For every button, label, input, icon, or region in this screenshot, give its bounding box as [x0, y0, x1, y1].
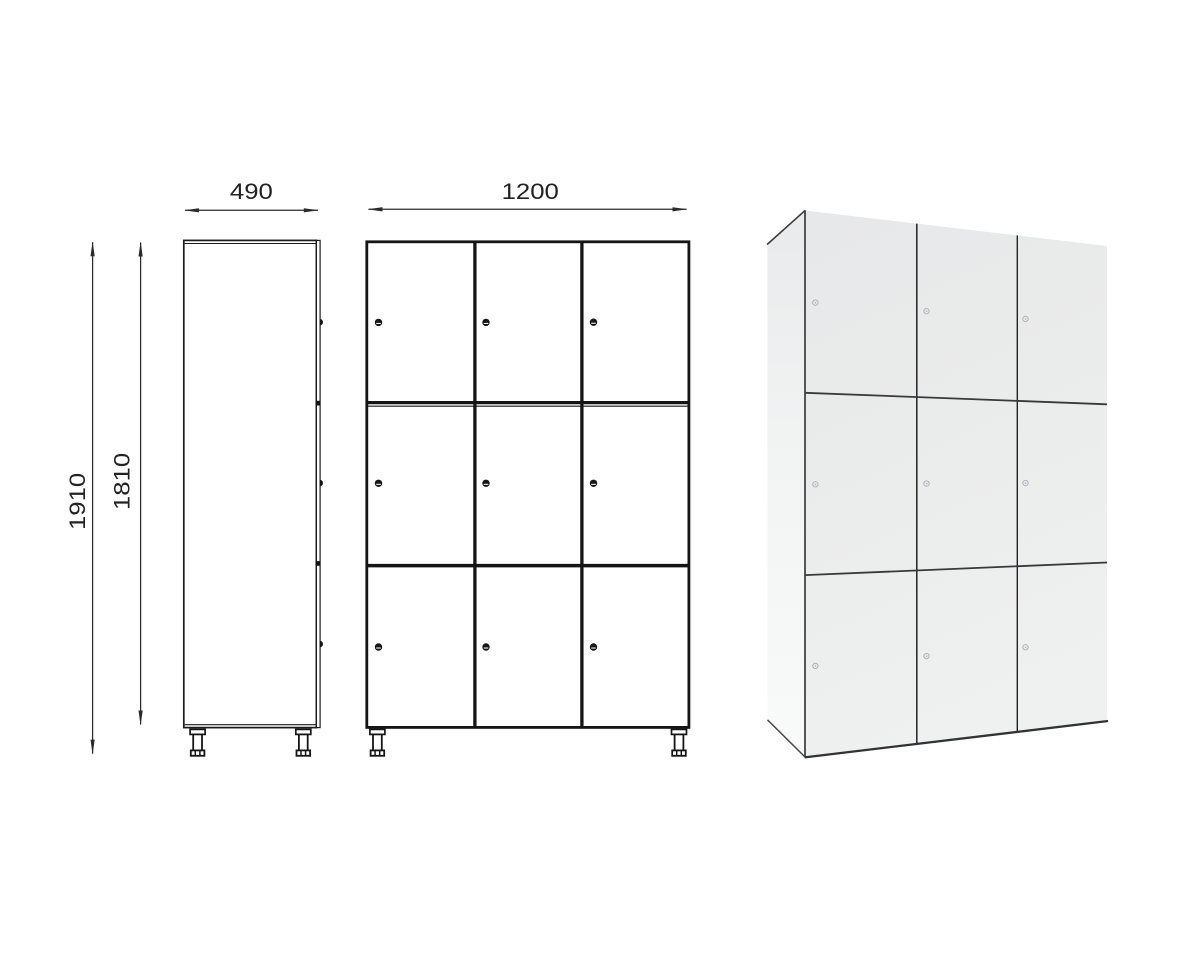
svg-text:1810: 1810 [110, 453, 135, 510]
svg-text:1910: 1910 [66, 473, 91, 530]
svg-text:1200: 1200 [502, 180, 559, 205]
svg-text:490: 490 [230, 180, 273, 205]
